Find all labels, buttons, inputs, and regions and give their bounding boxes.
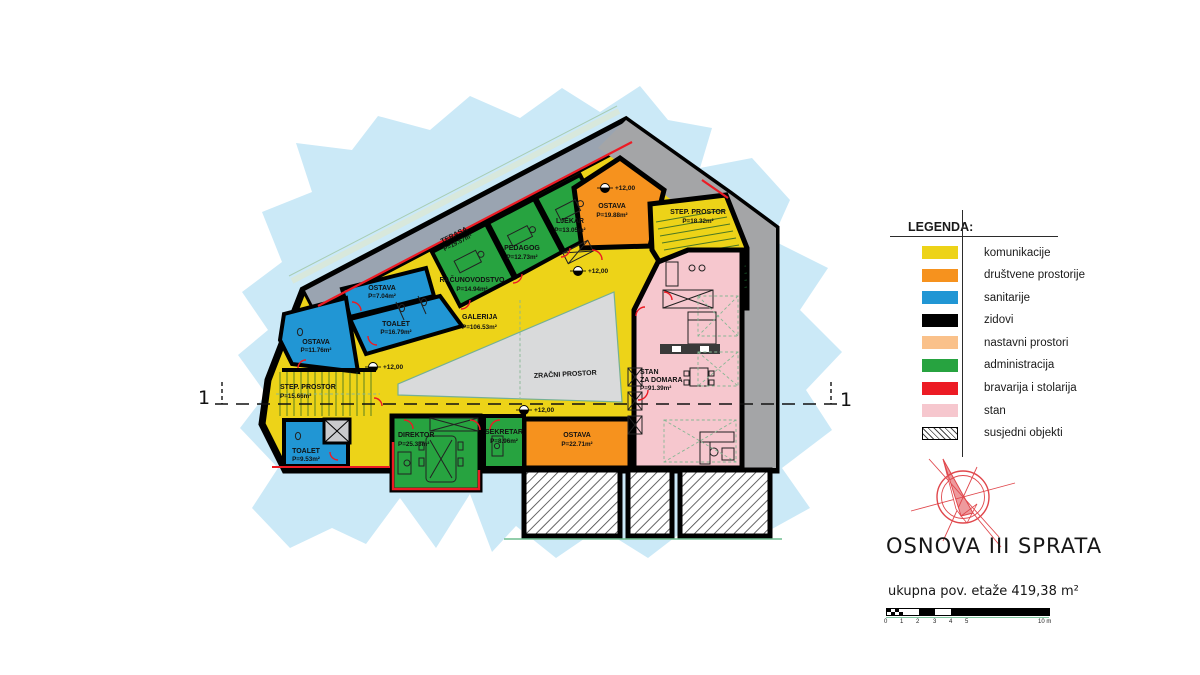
legend-item: društvene prostorije xyxy=(884,269,1104,282)
scale-bar-underline xyxy=(886,617,1049,618)
adjacent-buildings-hatched xyxy=(504,470,782,539)
label-galerija: GALERIJA xyxy=(462,314,497,321)
label-direktor: DIREKTOR xyxy=(398,432,434,439)
level-marker: +12,00 xyxy=(516,406,554,415)
legend-divider-h xyxy=(890,236,1058,237)
level-marker: +12,00 xyxy=(597,184,635,193)
section-marker-right: 1 xyxy=(840,389,852,411)
legend-swatch xyxy=(922,269,958,282)
legend-item: nastavni prostori xyxy=(884,336,1104,349)
legend-swatch xyxy=(922,336,958,349)
label-sekretar: SEKRETAR xyxy=(485,429,523,436)
svg-text:P=9.53m²: P=9.53m² xyxy=(292,456,320,463)
label-toalet16: TOALET xyxy=(382,321,411,328)
svg-text:P=19.88m²: P=19.88m² xyxy=(596,212,627,219)
svg-text:+12,00: +12,00 xyxy=(588,268,608,275)
label-step18: STEP. PROSTOR xyxy=(670,209,726,216)
level-marker: +12,00 xyxy=(570,267,608,276)
label-racunovodstvo: RAČUNOVODSTVO xyxy=(440,275,506,284)
scale-bar-end-label: 10 m xyxy=(1038,619,1051,625)
legend-swatch xyxy=(922,427,958,440)
legend-swatch xyxy=(922,404,958,417)
svg-text:P=15.66m²: P=15.66m² xyxy=(280,393,311,400)
legend-item: susjedni objekti xyxy=(884,427,1104,440)
svg-text:P=11.76m²: P=11.76m² xyxy=(301,347,332,354)
label-stan: STAN xyxy=(640,369,659,376)
svg-text:P=14.94m²: P=14.94m² xyxy=(456,286,487,293)
room-stan-za-domara xyxy=(634,250,742,468)
svg-text:P=106.53m²: P=106.53m² xyxy=(462,324,497,331)
legend-swatch xyxy=(922,314,958,327)
legend-item: zidovi xyxy=(884,314,1104,327)
label-pedagog: PEDAGOG xyxy=(504,245,540,252)
total-area-subtitle: ukupna pov. etaže 419,38 m² xyxy=(888,584,1079,599)
label-ostava22: OSTAVA xyxy=(563,432,591,439)
svg-text:ZA DOMARA: ZA DOMARA xyxy=(640,377,683,384)
label-ostava11: OSTAVA xyxy=(302,339,330,346)
legend-item: komunikacije xyxy=(884,246,1104,259)
label-ljekar: LJEKAR xyxy=(556,218,584,225)
floor-plan-sheet: +12,00 +12,00 +12,00 +12,00 TERASA P=19.… xyxy=(0,0,1200,675)
label-ostava7: OSTAVA xyxy=(368,285,396,292)
scale-bar-segments xyxy=(886,608,1050,616)
svg-text:P=8.96m²: P=8.96m² xyxy=(490,438,518,445)
legend-item: stan xyxy=(884,404,1104,417)
legend-item: administracija xyxy=(884,359,1104,372)
label-ostava19: OSTAVA xyxy=(598,203,626,210)
elevator-shaft xyxy=(324,419,350,443)
scale-bar: 0 1 2 3 4 5 10 m xyxy=(886,608,1052,630)
legend-swatch xyxy=(922,382,958,395)
svg-text:P=25.33m²: P=25.33m² xyxy=(398,441,429,448)
svg-text:P=12.73m²: P=12.73m² xyxy=(506,254,537,261)
label-toalet9: TOALET xyxy=(292,448,321,455)
svg-text:P=91.39m²: P=91.39m² xyxy=(640,385,671,392)
svg-text:+12,00: +12,00 xyxy=(534,407,554,414)
legend-swatch xyxy=(922,291,958,304)
svg-text:P=16.79m²: P=16.79m² xyxy=(380,329,411,336)
svg-text:+12,00: +12,00 xyxy=(383,364,403,371)
svg-text:+12,00: +12,00 xyxy=(615,185,635,192)
svg-text:P=22.71m²: P=22.71m² xyxy=(561,441,592,448)
svg-text:P=7.04m²: P=7.04m² xyxy=(368,293,396,300)
label-step15: STEP. PROSTOR xyxy=(280,384,336,391)
svg-text:P=13.05m²: P=13.05m² xyxy=(554,227,585,234)
section-marker-left: 1 xyxy=(198,387,210,409)
svg-text:P=18.32m²: P=18.32m² xyxy=(682,218,713,225)
legend-swatch xyxy=(922,359,958,372)
legend-title: LEGENDA: xyxy=(908,220,973,234)
legend-item: bravarija i stolarija xyxy=(884,382,1104,395)
room-direktor xyxy=(392,416,480,490)
legend-swatch xyxy=(922,246,958,259)
level-marker: +12,00 xyxy=(365,363,403,372)
page-title: OSNOVA III SPRATA xyxy=(886,534,1102,558)
legend-item: sanitarije xyxy=(884,291,1104,304)
